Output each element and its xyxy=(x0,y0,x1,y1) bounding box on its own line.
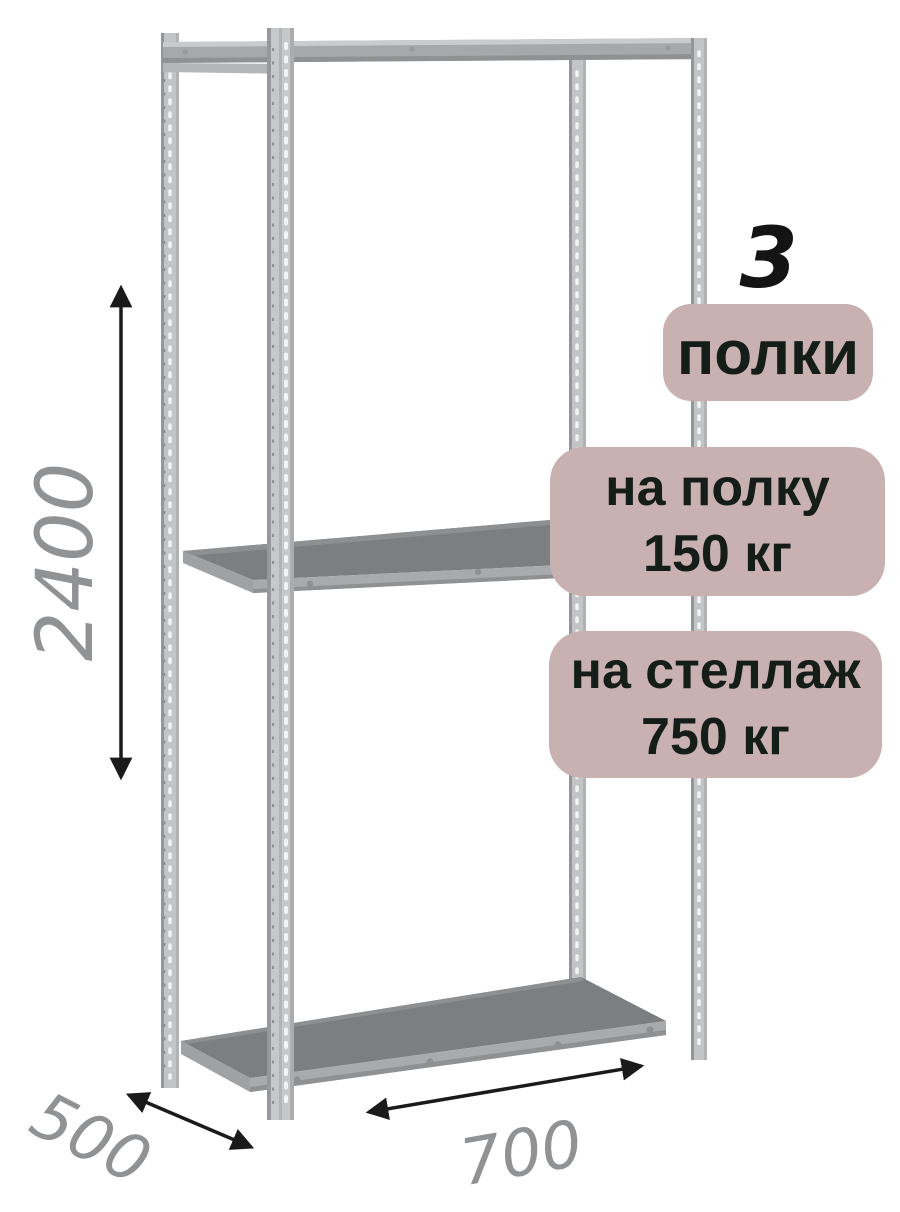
shelf-count-number: 3 xyxy=(678,216,798,300)
shelving-rack-graphic xyxy=(0,0,900,1200)
product-image: 2400 500 700 3 полки на полку 150 кг на … xyxy=(0,0,900,1200)
middle-shelf xyxy=(183,519,562,593)
top-shelf xyxy=(163,38,707,74)
width-arrow xyxy=(369,1066,641,1112)
dimension-label-height: 2400 xyxy=(27,442,107,682)
per-shelf-load-line1: на полку xyxy=(550,456,885,522)
front-left-post xyxy=(267,28,294,1120)
per-rack-load-badge: на стеллаж 750 кг xyxy=(549,631,882,778)
shelf-count-label: полки xyxy=(677,319,859,388)
per-rack-load-line1: на стеллаж xyxy=(549,639,882,705)
back-left-post xyxy=(161,33,179,1088)
shelf-count-badge: полки xyxy=(663,304,873,401)
per-rack-load-line2: 750 кг xyxy=(549,705,882,771)
per-shelf-load-line2: 150 кг xyxy=(550,522,885,588)
per-shelf-load-badge: на полку 150 кг xyxy=(550,447,885,596)
